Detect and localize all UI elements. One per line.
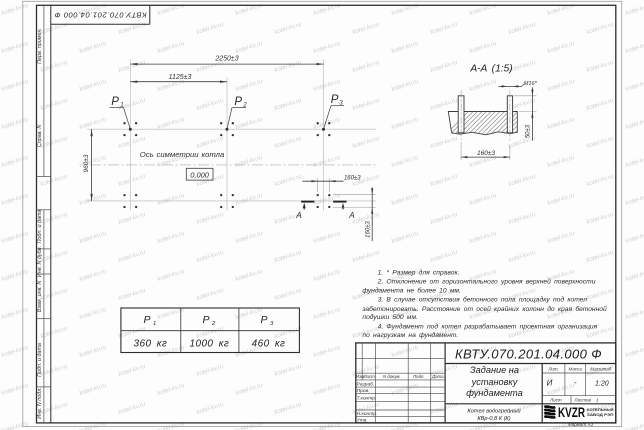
svg-text:P: P [331,94,339,106]
svg-text:Масштаб: Масштаб [590,366,611,371]
svg-text:1: 1 [153,321,156,327]
svg-text:P: P [234,96,242,108]
svg-text:подушки 500 мм.: подушки 500 мм. [362,313,418,321]
svg-text:Дата: Дата [431,374,444,379]
svg-text:1125±3: 1125±3 [169,74,192,81]
svg-text:А: А [295,211,302,220]
svg-text:460 кг: 460 кг [252,338,286,349]
svg-text:Масса: Масса [569,366,583,371]
svg-text:2250±3: 2250±3 [214,55,238,62]
svg-text:KVZR: KVZR [558,405,585,420]
svg-text:фундамента не более 10 мм.: фундамента не более 10 мм. [362,287,461,295]
svg-text:Подп.: Подп. [413,374,425,379]
svg-text:N докум.: N докум. [383,374,401,379]
svg-text:2. Отклонение от горизонтально: 2. Отклонение от горизонтального уровня … [377,277,596,285]
svg-text:4. Фундамент под котел разраба: 4. Фундамент под котел разрабатывает про… [378,323,598,331]
svg-text:1000 кг: 1000 кг [190,338,230,349]
svg-text:P: P [203,314,210,326]
svg-text:М16*: М16* [524,81,538,87]
svg-text:0,000: 0,000 [190,171,210,180]
svg-text:КВр-0,8 К (К): КВр-0,8 К (К) [477,416,510,422]
svg-text:Утв.: Утв. [357,418,368,424]
svg-text:160±3: 160±3 [344,175,361,181]
svg-text:3. В случае отсутствия бетонно: 3. В случае отсутствия бетонного пола пл… [378,296,588,304]
svg-text:КВТУ.070.201.04.000 Ф: КВТУ.070.201.04.000 Ф [54,10,147,19]
svg-text:А-А (1:5): А-А (1:5) [469,63,512,74]
svg-text:50±3: 50±3 [526,124,532,138]
svg-text:Разраб.: Разраб. [357,381,375,387]
svg-text:160±3: 160±3 [365,221,371,238]
svg-text:И: И [547,378,553,387]
svg-text:фундамента: фундамента [466,388,522,398]
svg-text:ЗАВОД РЭП: ЗАВОД РЭП [587,412,614,417]
svg-text:Подп. и дата: Подп. и дата [37,210,43,244]
svg-text:1:20: 1:20 [595,381,609,388]
svg-text:360 кг: 360 кг [134,338,168,349]
svg-text:1. * Размер для справок.: 1. * Размер для справок. [378,268,460,276]
svg-text:Лист: Лист [549,398,562,403]
svg-text:P: P [111,96,119,108]
svg-text:Н.контр.: Н.контр. [357,411,378,417]
svg-text:установку: установку [471,377,519,387]
svg-text:по нагрузкам на фундамент.: по нагрузкам на фундамент. [362,331,458,339]
svg-text:Перв. примен.: Перв. примен. [37,28,43,64]
svg-text:Взам. инв. N: Взам. инв. N [37,281,43,313]
svg-text:Лист: Лист [363,374,376,379]
svg-text:Лит.: Лит. [547,366,559,371]
svg-text:P: P [144,314,151,326]
svg-text:Справ. N: Справ. N [37,125,43,148]
svg-text:Инв. N подл.: Инв. N подл. [37,387,43,419]
svg-text:А: А [348,211,355,220]
svg-text:Формат А3: Формат А3 [568,422,594,427]
svg-text:Подп. и дата: Подп. и дата [37,343,43,377]
svg-text:Ось симметрии котла: Ось симметрии котла [140,150,225,159]
svg-text:Пров.: Пров. [357,388,370,394]
svg-text:Задание на: Задание на [470,365,519,375]
svg-text:160±3: 160±3 [477,150,495,157]
svg-text:960±3: 960±3 [83,154,90,172]
svg-text:Т.контр.: Т.контр. [357,396,377,402]
svg-text:забетонировать. Расстояние от: забетонировать. Расстояние от осей крайн… [361,305,607,313]
svg-text:Котел водогрейный: Котел водогрейный [467,407,520,414]
svg-text:Листов: Листов [574,398,592,403]
svg-text:P: P [261,314,268,326]
svg-text:КВТУ.070.201.04.000 Ф: КВТУ.070.201.04.000 Ф [455,346,602,361]
svg-text:Инв. N дубл.: Инв. N дубл. [37,246,43,277]
